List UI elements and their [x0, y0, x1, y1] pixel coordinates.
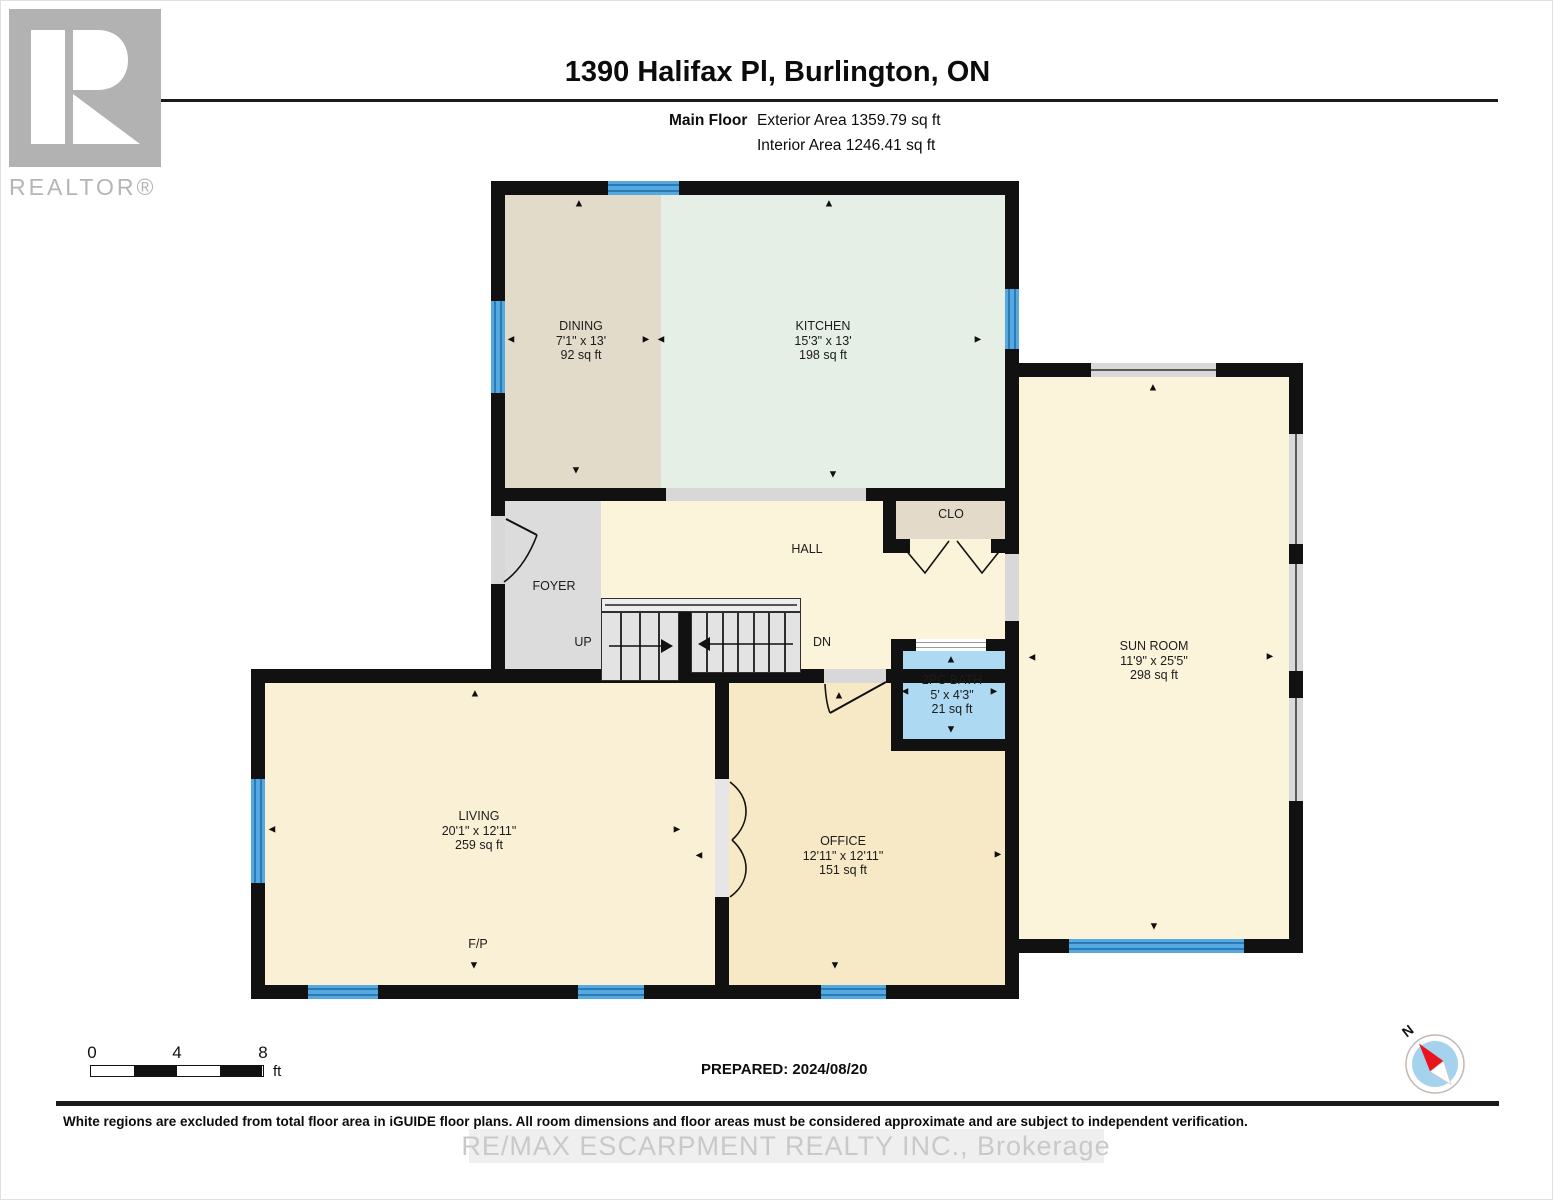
stairs-up-label: UP: [574, 635, 591, 650]
room-dims: 20'1" x 12'11": [442, 824, 517, 839]
room-name: LIVING: [442, 809, 517, 824]
dim-arrow-up: ▲: [834, 691, 845, 702]
compass-north-label: N: [1399, 1021, 1417, 1040]
room-dims: 7'1" x 13': [556, 334, 606, 349]
dim-arrow-up: ▲: [1148, 383, 1159, 394]
room-name: DINING: [556, 319, 606, 334]
dim-arrow-left: ◄: [900, 687, 911, 698]
dim-arrow-down: ▼: [830, 961, 841, 972]
room-dims: 15'3" x 13': [794, 334, 851, 349]
room-dims: 5' x 4'3": [922, 688, 982, 703]
dim-arrow-right: ►: [973, 335, 984, 346]
dim-arrow-left: ◄: [506, 335, 517, 346]
room-area: 198 sq ft: [794, 348, 851, 363]
dim-arrow-down: ▼: [571, 466, 582, 477]
scale-segment: [220, 1066, 262, 1076]
dim-arrow-up: ▲: [470, 689, 481, 700]
brokerage-watermark: RE/MAX ESCARPMENT REALTY INC., Brokerage: [461, 1131, 1110, 1162]
foyer-label: FOYER: [532, 579, 575, 594]
room-area: 151 sq ft: [803, 863, 884, 878]
room-label-kitchen: KITCHEN 15'3" x 13' 198 sq ft: [794, 319, 851, 363]
room-label-living: LIVING 20'1" x 12'11" 259 sq ft: [442, 809, 517, 853]
scale-segment: [134, 1066, 177, 1076]
dim-arrow-down: ▼: [946, 725, 957, 736]
room-area: 21 sq ft: [922, 702, 982, 717]
compass-icon: N: [1397, 1019, 1481, 1103]
room-label-bath: 2PC BATH 5' x 4'3" 21 sq ft: [922, 673, 982, 717]
footer-divider: [56, 1101, 1499, 1106]
room-area: 259 sq ft: [442, 838, 517, 853]
dim-arrow-up: ▲: [574, 199, 585, 210]
room-label-dining: DINING 7'1" x 13' 92 sq ft: [556, 319, 606, 363]
dim-arrow-left: ◄: [267, 825, 278, 836]
dim-arrow-up: ▲: [946, 655, 957, 666]
dim-arrow-right: ►: [989, 687, 1000, 698]
scale-tick-0: 0: [87, 1043, 96, 1063]
dim-arrow-left: ◄: [1027, 653, 1038, 664]
room-name: SUN ROOM: [1120, 639, 1189, 654]
fireplace-label: F/P: [468, 937, 487, 952]
dim-arrow-right: ►: [672, 825, 683, 836]
scale-bar: [90, 1065, 264, 1077]
room-dims: 11'9" x 25'5": [1120, 654, 1189, 669]
room-name: OFFICE: [803, 834, 884, 849]
disclaimer-text: White regions are excluded from total fl…: [63, 1114, 1248, 1129]
room-name: KITCHEN: [794, 319, 851, 334]
floor-plan-page: 1390 Halifax Pl, Burlington, ON Main Flo…: [0, 0, 1553, 1200]
prepared-date: PREPARED: 2024/08/20: [701, 1061, 867, 1078]
room-label-sun-room: SUN ROOM 11'9" x 25'5" 298 sq ft: [1120, 639, 1189, 683]
room-label-office: OFFICE 12'11" x 12'11" 151 sq ft: [803, 834, 884, 878]
dim-arrow-down: ▼: [469, 961, 480, 972]
dim-arrow-down: ▼: [828, 470, 839, 481]
scale-tick-4: 4: [172, 1043, 181, 1063]
scale-unit: ft: [273, 1063, 281, 1080]
closet-label: CLO: [938, 507, 964, 522]
plan-linework: [1, 1, 1553, 1200]
room-dims: 12'11" x 12'11": [803, 849, 884, 864]
dim-arrow-right: ►: [641, 335, 652, 346]
room-area: 92 sq ft: [556, 348, 606, 363]
room-area: 298 sq ft: [1120, 668, 1189, 683]
dim-arrow-right: ►: [993, 850, 1004, 861]
scale-tick-8: 8: [258, 1043, 267, 1063]
dim-arrow-left: ◄: [694, 851, 705, 862]
dim-arrow-up: ▲: [824, 199, 835, 210]
hall-label: HALL: [791, 542, 822, 557]
room-name: 2PC BATH: [922, 673, 982, 688]
stairs-down-label: DN: [813, 635, 831, 650]
dim-arrow-down: ▼: [1149, 922, 1160, 933]
dim-arrow-right: ►: [1265, 652, 1276, 663]
dim-arrow-left: ◄: [656, 335, 667, 346]
